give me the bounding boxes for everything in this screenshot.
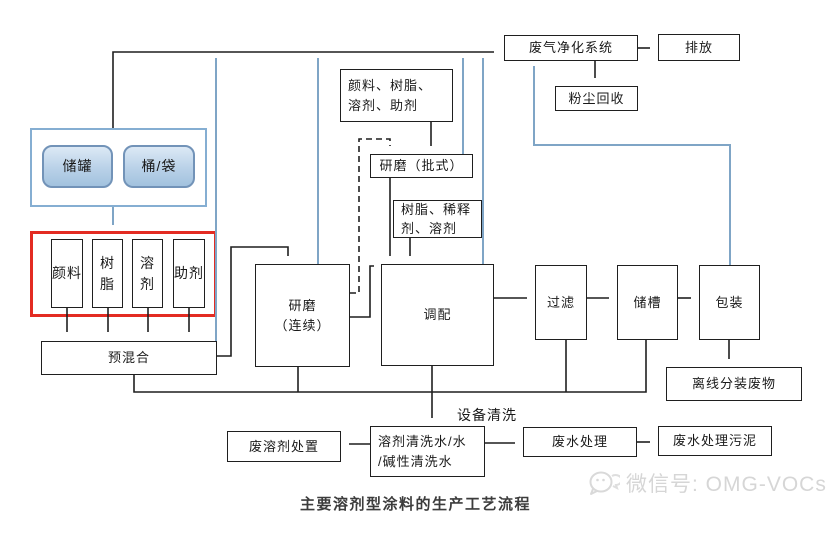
diagram-caption: 主要溶剂型涂料的生产工艺流程: [300, 493, 531, 514]
node-pigment: 颜料: [51, 239, 83, 308]
watermark: 微信号: OMG-VOCs: [588, 468, 827, 498]
node-premix: 预混合: [41, 341, 217, 375]
node-dust-recovery: 粉尘回收: [555, 86, 638, 111]
node-grinding-batch: 研磨（批式）: [370, 154, 473, 178]
node-resin: 树脂: [92, 239, 123, 308]
node-waste-solvent-disposal: 废溶剂处置: [227, 431, 341, 462]
node-wastewater-sludge: 废水处理污泥: [658, 426, 772, 456]
equipment-cleaning-label: 设备清洗: [457, 405, 517, 425]
flow-grinding-continuous-to-blending: [350, 266, 374, 317]
node-grinding-continuous: 研磨 （连续）: [255, 264, 350, 367]
node-emission: 排放: [658, 34, 740, 61]
wechat-icon: [588, 469, 620, 497]
node-wastewater-treatment: 废水处理: [523, 427, 637, 457]
node-storage-trough: 储槽: [617, 265, 678, 340]
watermark-text: 微信号: OMG-VOCs: [626, 468, 827, 498]
node-materials-pigment-resin-solvent-additive: 颜料、树脂、溶剂、助剂: [340, 69, 453, 122]
node-barrel-bag: 桶/袋: [123, 145, 195, 188]
node-solvent: 溶剂: [132, 239, 163, 308]
node-filtering: 过滤: [535, 265, 587, 340]
node-offline-packaging-waste: 离线分装废物: [666, 367, 802, 401]
node-cleaning-water: 溶剂清洗水/水 /碱性清洗水: [370, 426, 485, 477]
node-storage-tank: 储罐: [42, 145, 113, 188]
process-flow-diagram: 储罐 桶/袋 颜料 树脂 溶剂 助剂 预混合 研磨 （连续） 颜料、树脂、溶剂、…: [0, 0, 835, 538]
node-packaging: 包装: [699, 265, 760, 340]
node-additive: 助剂: [173, 239, 205, 308]
node-materials-resin-diluent-solvent: 树脂、稀释剂、溶剂: [393, 200, 482, 238]
node-blending: 调配: [381, 264, 494, 366]
node-waste-gas-purification: 废气净化系统: [504, 35, 638, 61]
